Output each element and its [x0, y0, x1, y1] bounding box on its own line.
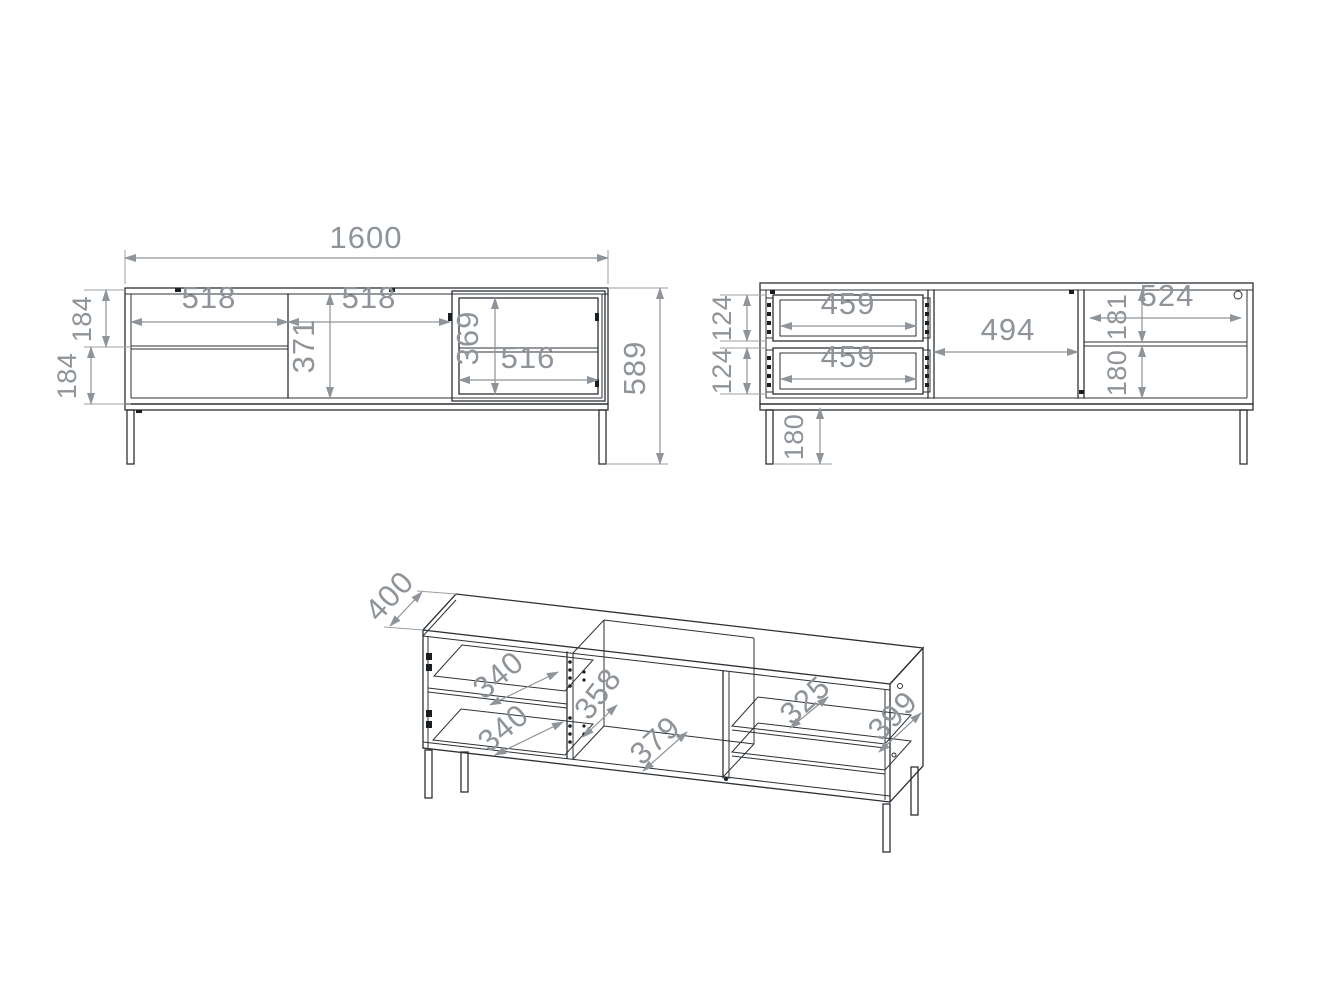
dim-side-panel-depth: 399: [861, 684, 924, 747]
front-right-leg: [599, 410, 606, 464]
hinge-tick-left: [175, 288, 181, 292]
dim-right-bottom-height: 180: [1102, 350, 1132, 397]
dim-top-drawer-depth: 340: [466, 644, 530, 706]
hinge-hole-bottom: [892, 753, 896, 757]
front-view: 1600 518 518 371 369 516 184 184 589: [52, 220, 668, 464]
dim-bottom-drawer-box-width: 459: [821, 339, 876, 374]
dim-left-section-width: 518: [182, 280, 237, 315]
interior-view: 124 124 459 459 494 524 181 180 180: [707, 278, 1253, 464]
front-dimensions: 1600 518 518 371 369 516 184 184 589: [52, 220, 668, 464]
dim-bottom-drawer-depth: 340: [471, 697, 535, 759]
iso-back-right-leg: [911, 767, 918, 815]
dim-overall-depth: 400: [358, 564, 421, 628]
front-left-leg: [127, 410, 134, 464]
interior-dimensions: 124 124 459 459 494 524 181 180 180: [707, 278, 1241, 464]
cam-lock-circle: [1234, 291, 1242, 299]
dim-right-top-height: 181: [1102, 294, 1132, 341]
dim-glass-height: 369: [450, 311, 485, 366]
interior-right-leg: [1240, 410, 1247, 464]
dim-right-compartment-width: 524: [1140, 278, 1195, 313]
iso-front-right-leg: [883, 804, 890, 852]
perspective-view: 400 340 340 358 379 325 399: [358, 564, 924, 852]
dim-overall-width: 1600: [330, 220, 403, 255]
dim-shelf-depth: 325: [773, 669, 837, 732]
interior-right-shelf: [1084, 342, 1247, 346]
dim-top-drawer-box-height: 124: [707, 295, 737, 342]
dim-top-drawer-box-width: 459: [821, 286, 876, 321]
iso-dimensions: 400 340 340 358 379 325 399: [358, 564, 924, 772]
dim-middle-door-height: 371: [286, 319, 321, 374]
dim-bottom-drawer-box-height: 124: [707, 348, 737, 395]
technical-drawing-page: 1600 518 518 371 369 516 184 184 589: [0, 0, 1341, 1005]
iso-front-left-leg: [425, 750, 432, 798]
dim-top-drawer-height: 184: [67, 296, 97, 343]
interior-left-leg: [766, 410, 773, 464]
iso-back-left-leg: [461, 752, 468, 792]
hinge-mark-top: [595, 313, 599, 321]
dim-glass-width: 516: [501, 340, 556, 375]
dim-middle-compartment-width: 379: [623, 709, 687, 772]
drawing-svg: 1600 518 518 371 369 516 184 184 589: [0, 0, 1341, 1005]
dim-middle-door-width: 518: [342, 280, 397, 315]
dim-middle-compartment-width: 494: [981, 312, 1036, 347]
dim-leg-height: 180: [779, 414, 809, 461]
dim-overall-height: 589: [617, 341, 652, 396]
dim-bottom-drawer-height: 184: [52, 353, 82, 400]
dim-middle-compartment-height: 358: [567, 661, 628, 726]
